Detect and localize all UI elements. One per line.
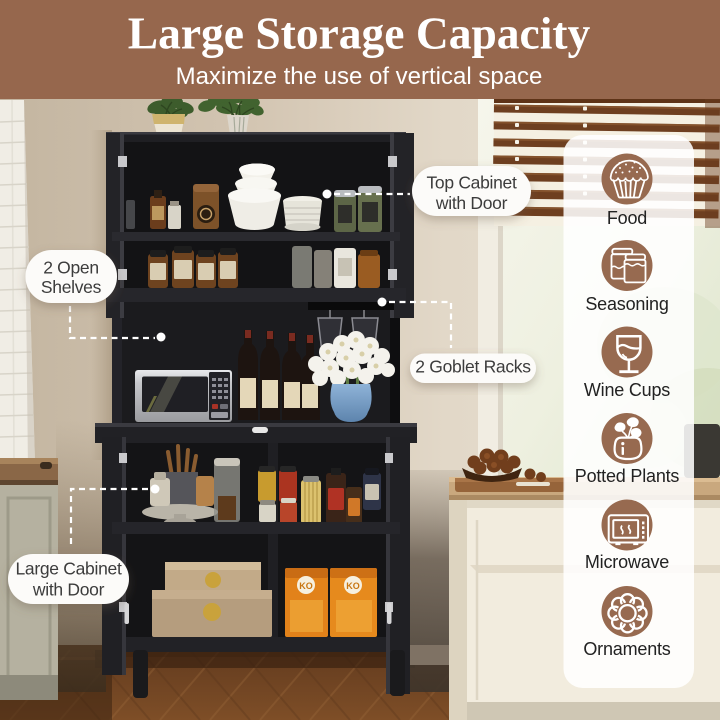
svg-text:Ornaments: Ornaments (583, 639, 670, 659)
svg-text:KO: KO (299, 581, 313, 591)
svg-text:with Door: with Door (32, 580, 105, 600)
svg-text:Food: Food (607, 208, 647, 228)
svg-text:Wine Cups: Wine Cups (584, 380, 670, 400)
svg-text:2 Open: 2 Open (43, 258, 99, 278)
svg-text:Large Cabinet: Large Cabinet (15, 559, 121, 579)
svg-text:2 Goblet Racks: 2 Goblet Racks (415, 357, 531, 377)
svg-text:Large Storage Capacity: Large Storage Capacity (128, 8, 591, 59)
svg-text:Top Cabinet: Top Cabinet (426, 173, 517, 193)
svg-text:Potted Plants: Potted Plants (575, 466, 680, 486)
svg-text:KO: KO (346, 581, 360, 591)
svg-text:with Door: with Door (435, 193, 508, 213)
svg-text:Microwave: Microwave (585, 552, 669, 572)
svg-text:Maximize the use of vertical s: Maximize the use of vertical space (176, 63, 543, 90)
svg-text:Seasoning: Seasoning (585, 294, 668, 314)
svg-text:Shelves: Shelves (41, 277, 102, 297)
